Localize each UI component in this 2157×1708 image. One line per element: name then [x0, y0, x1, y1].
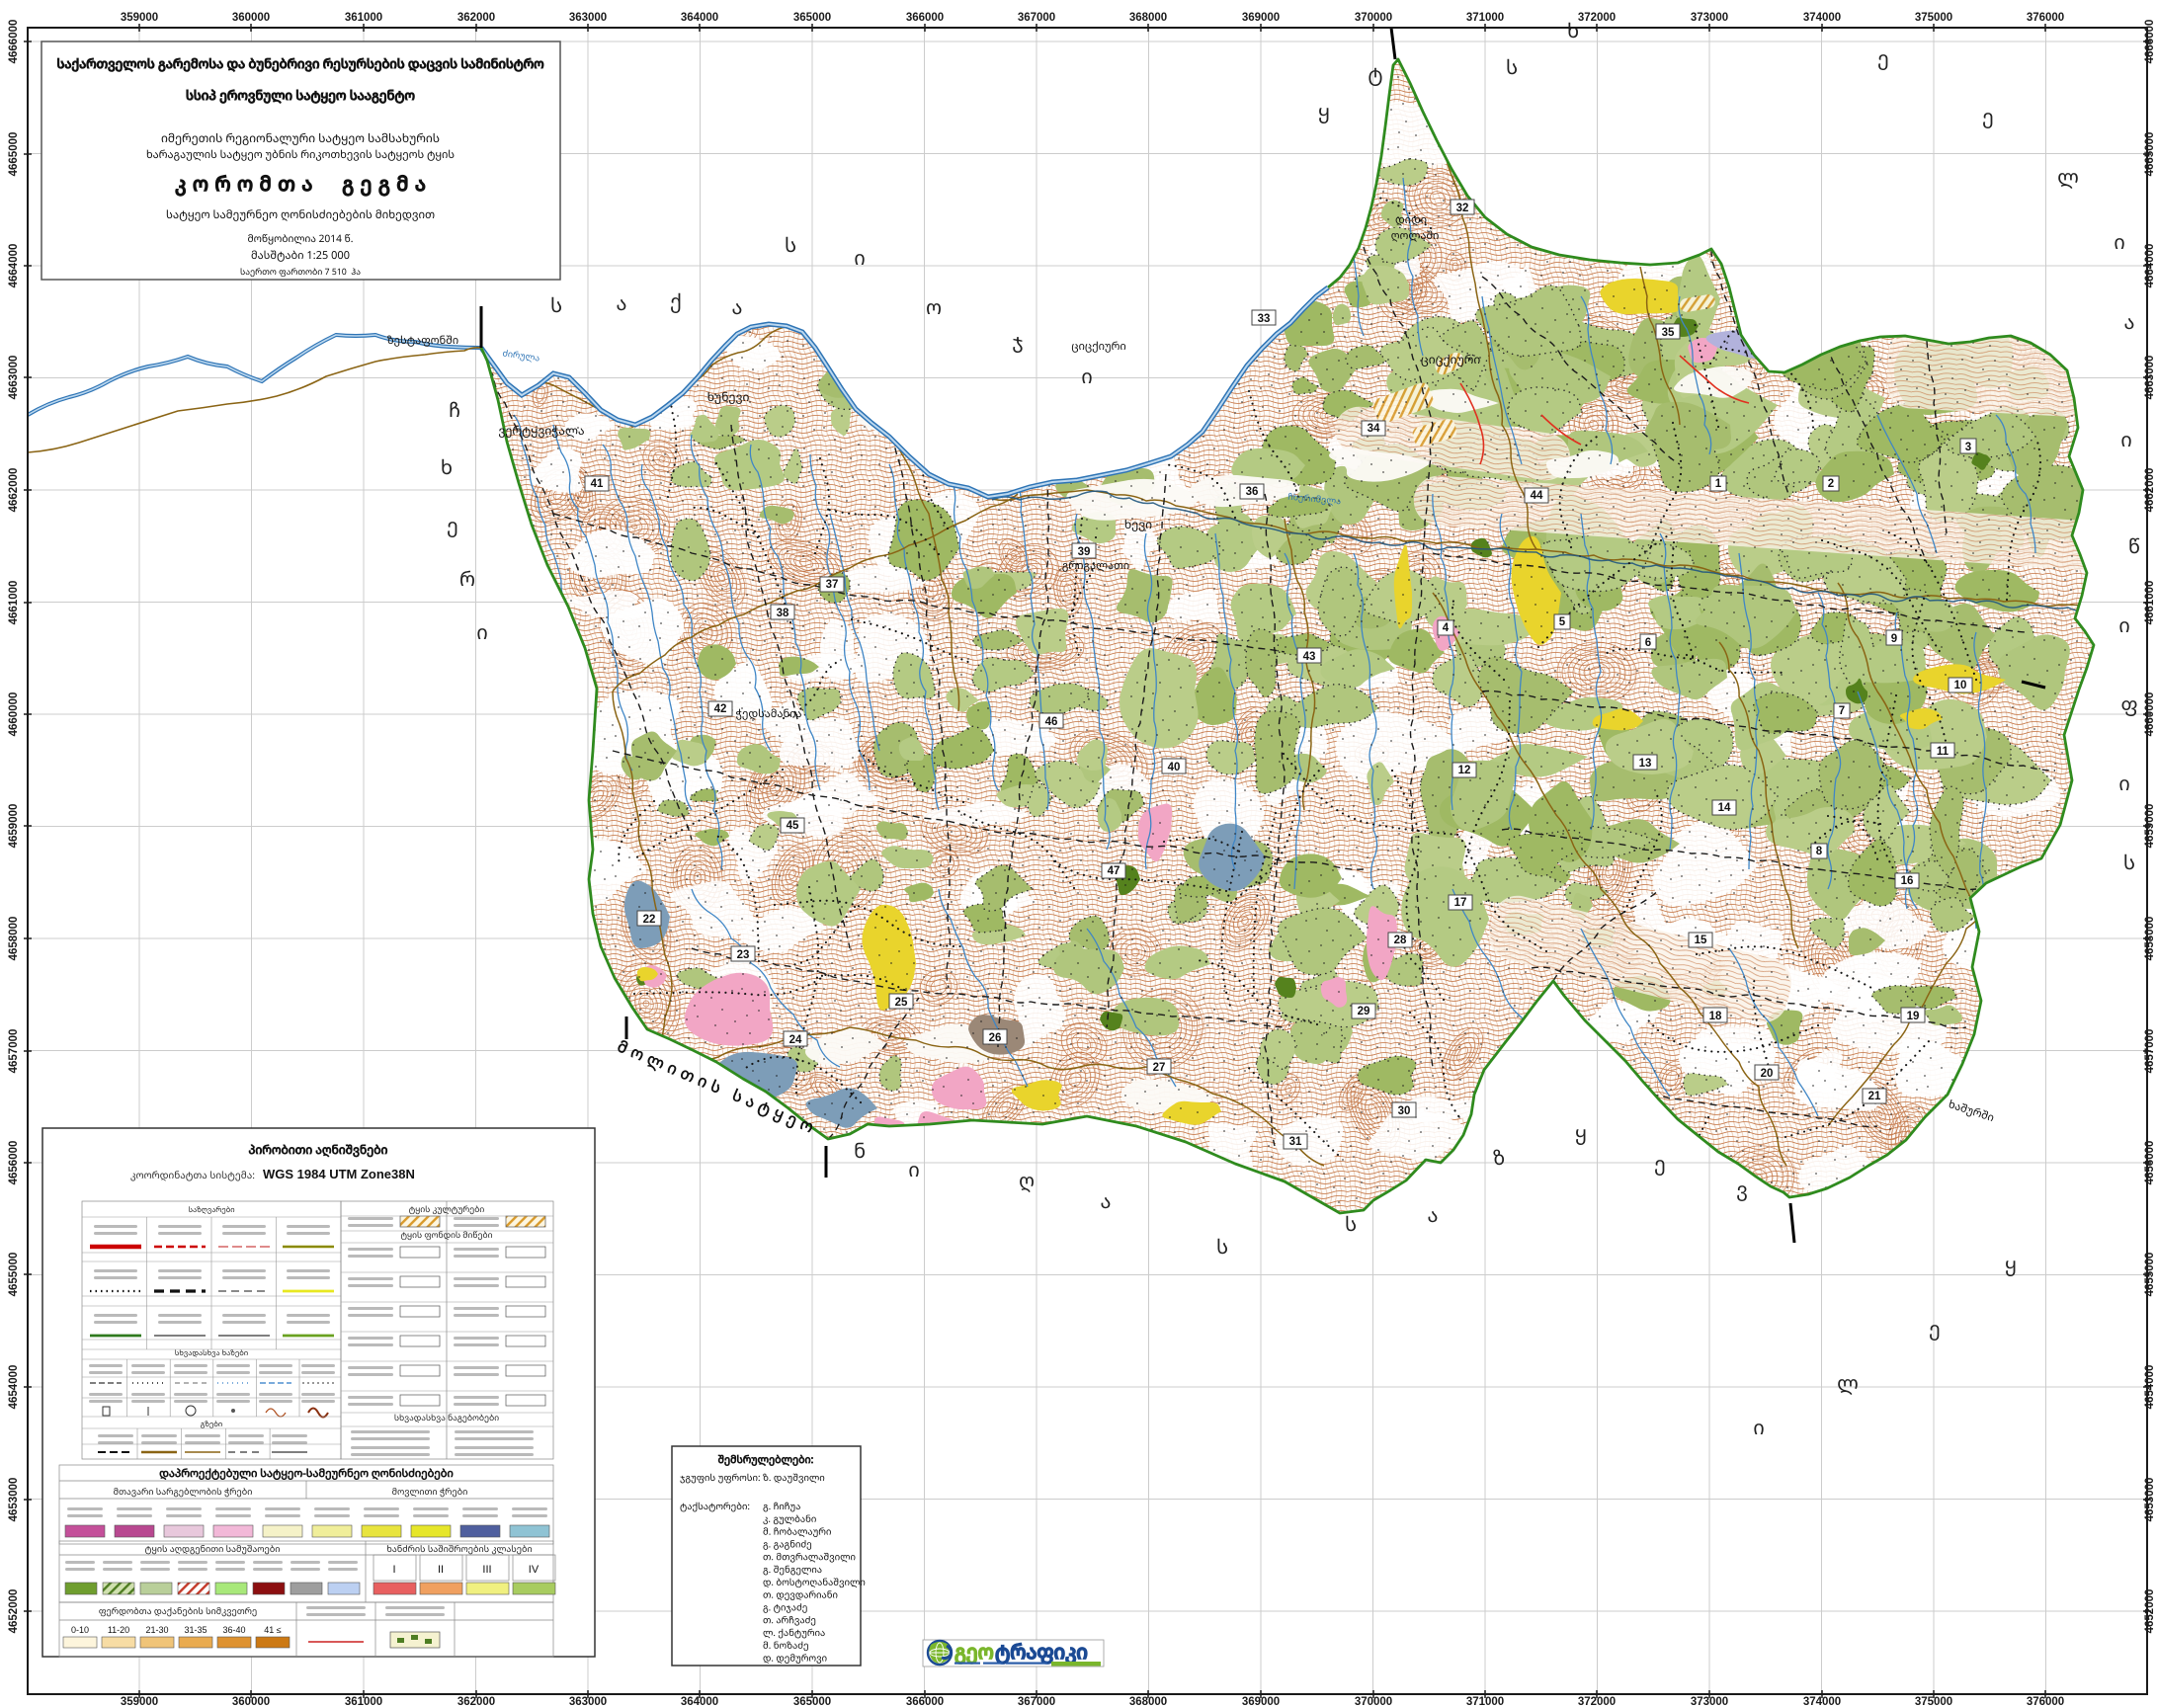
- svg-text:36-40: 36-40: [222, 1625, 245, 1635]
- svg-text:4660000: 4660000: [8, 692, 20, 737]
- svg-text:9: 9: [1891, 633, 1897, 645]
- svg-text:31-35: 31-35: [184, 1625, 207, 1635]
- svg-text:26: 26: [989, 1032, 1002, 1044]
- svg-text:WGS 1984 UTM Zone38N: WGS 1984 UTM Zone38N: [263, 1167, 415, 1181]
- svg-text:24: 24: [789, 1034, 802, 1046]
- svg-text:4654000: 4654000: [8, 1365, 20, 1410]
- svg-text:4664000: 4664000: [8, 244, 20, 288]
- svg-text:371000: 371000: [1466, 12, 1504, 24]
- svg-text:4661000: 4661000: [8, 581, 20, 625]
- svg-text:0-10: 0-10: [71, 1625, 89, 1635]
- svg-text:44: 44: [1531, 490, 1543, 502]
- svg-text:365000: 365000: [793, 12, 831, 24]
- svg-text:15: 15: [1695, 935, 1707, 946]
- svg-text:11-20: 11-20: [108, 1625, 129, 1635]
- svg-text:IV: IV: [529, 1564, 539, 1576]
- svg-text:4658000: 4658000: [8, 917, 20, 961]
- svg-text:5: 5: [1559, 616, 1566, 628]
- svg-text:19: 19: [1907, 1011, 1920, 1022]
- svg-text:4653000: 4653000: [8, 1478, 20, 1522]
- svg-text:362000: 362000: [457, 12, 495, 24]
- svg-text:375000: 375000: [1915, 12, 1952, 24]
- svg-text:4659000: 4659000: [8, 804, 20, 849]
- svg-text:III: III: [482, 1564, 491, 1576]
- svg-text:373000: 373000: [1691, 12, 1728, 24]
- svg-text:14: 14: [1718, 802, 1731, 814]
- svg-text:43: 43: [1303, 651, 1316, 663]
- svg-text:360000: 360000: [232, 12, 270, 24]
- svg-text:8: 8: [1816, 846, 1823, 857]
- svg-text:7: 7: [1839, 705, 1845, 717]
- svg-text:367000: 367000: [1018, 12, 1055, 24]
- svg-text:2: 2: [1828, 478, 1834, 490]
- svg-text:370000: 370000: [1355, 12, 1392, 24]
- svg-text:4: 4: [1443, 622, 1450, 634]
- svg-text:37: 37: [826, 579, 839, 591]
- svg-text:33: 33: [1258, 313, 1271, 325]
- svg-text:368000: 368000: [1129, 12, 1167, 24]
- svg-text:25: 25: [895, 997, 908, 1009]
- svg-text:41: 41: [591, 478, 604, 490]
- svg-text:11: 11: [1937, 746, 1950, 758]
- svg-text:46: 46: [1045, 716, 1058, 728]
- svg-text:359000: 359000: [121, 12, 158, 24]
- svg-text:I: I: [392, 1564, 395, 1576]
- svg-text:366000: 366000: [906, 12, 944, 24]
- svg-text:27: 27: [1153, 1062, 1166, 1074]
- svg-text:17: 17: [1454, 897, 1467, 909]
- svg-text:29: 29: [1358, 1006, 1370, 1017]
- svg-text:6: 6: [1645, 637, 1651, 649]
- svg-text:38: 38: [777, 608, 789, 619]
- svg-text:45: 45: [787, 820, 799, 832]
- svg-text:4663000: 4663000: [8, 356, 20, 400]
- svg-text:369000: 369000: [1242, 12, 1280, 24]
- svg-text:4656000: 4656000: [8, 1141, 20, 1185]
- svg-text:16: 16: [1901, 875, 1914, 887]
- svg-text:13: 13: [1639, 758, 1652, 770]
- svg-text:42: 42: [714, 703, 727, 715]
- svg-text:364000: 364000: [681, 12, 718, 24]
- svg-text:372000: 372000: [1578, 12, 1616, 24]
- svg-text:32: 32: [1456, 203, 1469, 214]
- svg-text:4657000: 4657000: [8, 1029, 20, 1074]
- svg-text:22: 22: [643, 914, 656, 926]
- svg-text:II: II: [438, 1564, 444, 1576]
- svg-text:35: 35: [1662, 327, 1675, 339]
- svg-text:21: 21: [1868, 1091, 1881, 1102]
- svg-text:47: 47: [1108, 865, 1120, 877]
- svg-text:28: 28: [1394, 935, 1407, 946]
- svg-text:374000: 374000: [1803, 12, 1841, 24]
- svg-text:361000: 361000: [345, 12, 382, 24]
- svg-text:40: 40: [1168, 762, 1181, 773]
- svg-text:4665000: 4665000: [8, 132, 20, 177]
- svg-text:3: 3: [1965, 442, 1971, 453]
- svg-text:4652000: 4652000: [8, 1589, 20, 1634]
- svg-text:30: 30: [1398, 1105, 1411, 1117]
- svg-text:23: 23: [737, 949, 750, 961]
- svg-text:39: 39: [1078, 546, 1091, 558]
- svg-text:10: 10: [1954, 680, 1967, 691]
- svg-text:41 ≤: 41 ≤: [264, 1625, 282, 1635]
- svg-text:20: 20: [1761, 1068, 1774, 1080]
- svg-text:34: 34: [1368, 423, 1380, 435]
- svg-text:36: 36: [1246, 486, 1259, 498]
- svg-text:31: 31: [1289, 1136, 1302, 1148]
- svg-text:363000: 363000: [569, 12, 607, 24]
- svg-text:4655000: 4655000: [8, 1253, 20, 1297]
- svg-text:12: 12: [1458, 765, 1471, 776]
- svg-text:21-30: 21-30: [145, 1625, 168, 1635]
- svg-text:4662000: 4662000: [8, 468, 20, 513]
- svg-text:1: 1: [1715, 478, 1722, 490]
- svg-text:376000: 376000: [2027, 12, 2064, 24]
- svg-text:4666000: 4666000: [8, 20, 20, 64]
- svg-text:18: 18: [1709, 1011, 1722, 1022]
